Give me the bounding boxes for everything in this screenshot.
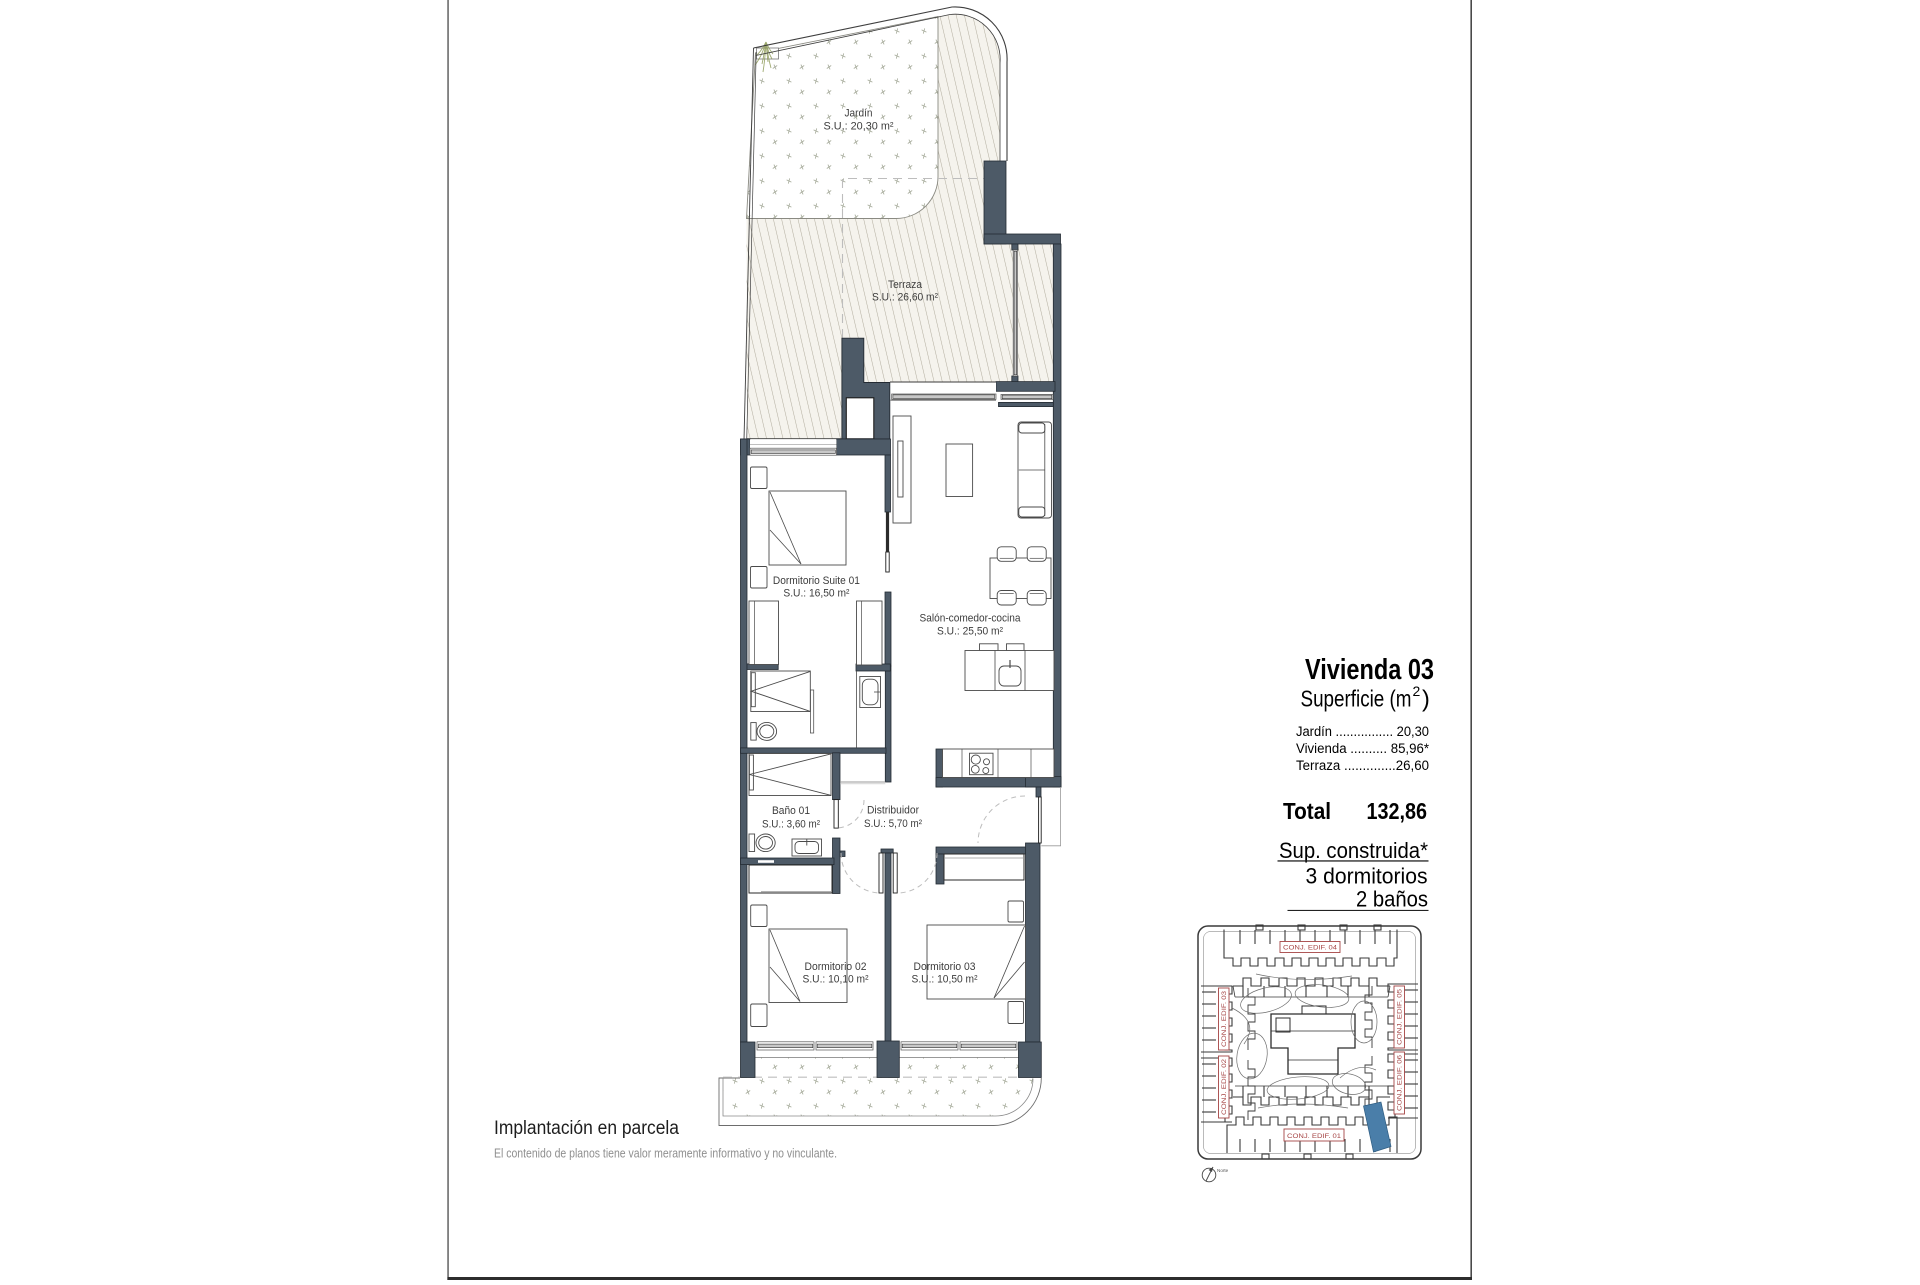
svg-text:3 dormitorios: 3 dormitorios (1306, 864, 1428, 889)
svg-text:Sup. construida*: Sup. construida* (1279, 838, 1428, 863)
svg-text:Dormitorio Suite 01: Dormitorio Suite 01 (773, 575, 860, 587)
svg-text:132,86: 132,86 (1367, 798, 1428, 824)
svg-text:Implantación en parcela: Implantación en parcela (494, 1118, 679, 1139)
svg-text:S.U.: 26,60 m²: S.U.: 26,60 m² (872, 292, 938, 304)
svg-text:S.U.: 25,50 m²: S.U.: 25,50 m² (937, 626, 1003, 638)
svg-text:Dormitorio 03: Dormitorio 03 (914, 961, 976, 973)
svg-text:Vivienda 03: Vivienda 03 (1305, 654, 1434, 686)
svg-text:Total: Total (1283, 798, 1331, 824)
svg-text:CONJ. EDIF. 03: CONJ. EDIF. 03 (1221, 990, 1228, 1047)
svg-text:Terraza: Terraza (888, 279, 923, 291)
svg-text:2: 2 (1413, 683, 1421, 699)
svg-text:S.U.: 20,30 m²: S.U.: 20,30 m² (824, 121, 894, 133)
svg-text:S.U.: 10,10 m²: S.U.: 10,10 m² (803, 974, 869, 986)
svg-text:Terraza ..............26,60: Terraza ..............26,60 (1296, 758, 1429, 773)
svg-text:Jardín ................ 20,30: Jardín ................ 20,30 (1296, 724, 1429, 739)
svg-text:Salón-comedor-cocina: Salón-comedor-cocina (920, 613, 1022, 625)
svg-text:2 baños: 2 baños (1356, 887, 1428, 912)
svg-text:Vivienda .......... 85,96*: Vivienda .......... 85,96* (1296, 741, 1429, 756)
svg-text:Baño 01: Baño 01 (772, 805, 810, 817)
svg-text:CONJ. EDIF. 01: CONJ. EDIF. 01 (1287, 1133, 1342, 1140)
svg-text:Dormitorio 02: Dormitorio 02 (805, 961, 867, 973)
svg-text:CONJ. EDIF. 05: CONJ. EDIF. 05 (1396, 988, 1403, 1045)
svg-text:Superficie (m: Superficie (m (1301, 686, 1412, 712)
svg-text:S.U.: 16,50 m²: S.U.: 16,50 m² (783, 588, 849, 600)
svg-text:): ) (1422, 686, 1430, 712)
svg-text:Distribuidor: Distribuidor (867, 805, 919, 817)
svg-text:S.U.: 5,70 m²: S.U.: 5,70 m² (864, 818, 922, 830)
svg-text:Norte: Norte (1217, 1168, 1229, 1173)
svg-text:El contenido de planos tiene v: El contenido de planos tiene valor meram… (494, 1146, 837, 1161)
svg-text:CONJ. EDIF. 06: CONJ. EDIF. 06 (1396, 1054, 1403, 1111)
svg-text:CONJ. EDIF. 02: CONJ. EDIF. 02 (1221, 1058, 1228, 1115)
svg-text:CONJ. EDIF. 04: CONJ. EDIF. 04 (1283, 945, 1338, 952)
svg-text:Jardín: Jardín (845, 108, 873, 120)
svg-text:S.U.: 3,60 m²: S.U.: 3,60 m² (762, 819, 820, 831)
svg-text:S.U.: 10,50 m²: S.U.: 10,50 m² (912, 974, 978, 986)
